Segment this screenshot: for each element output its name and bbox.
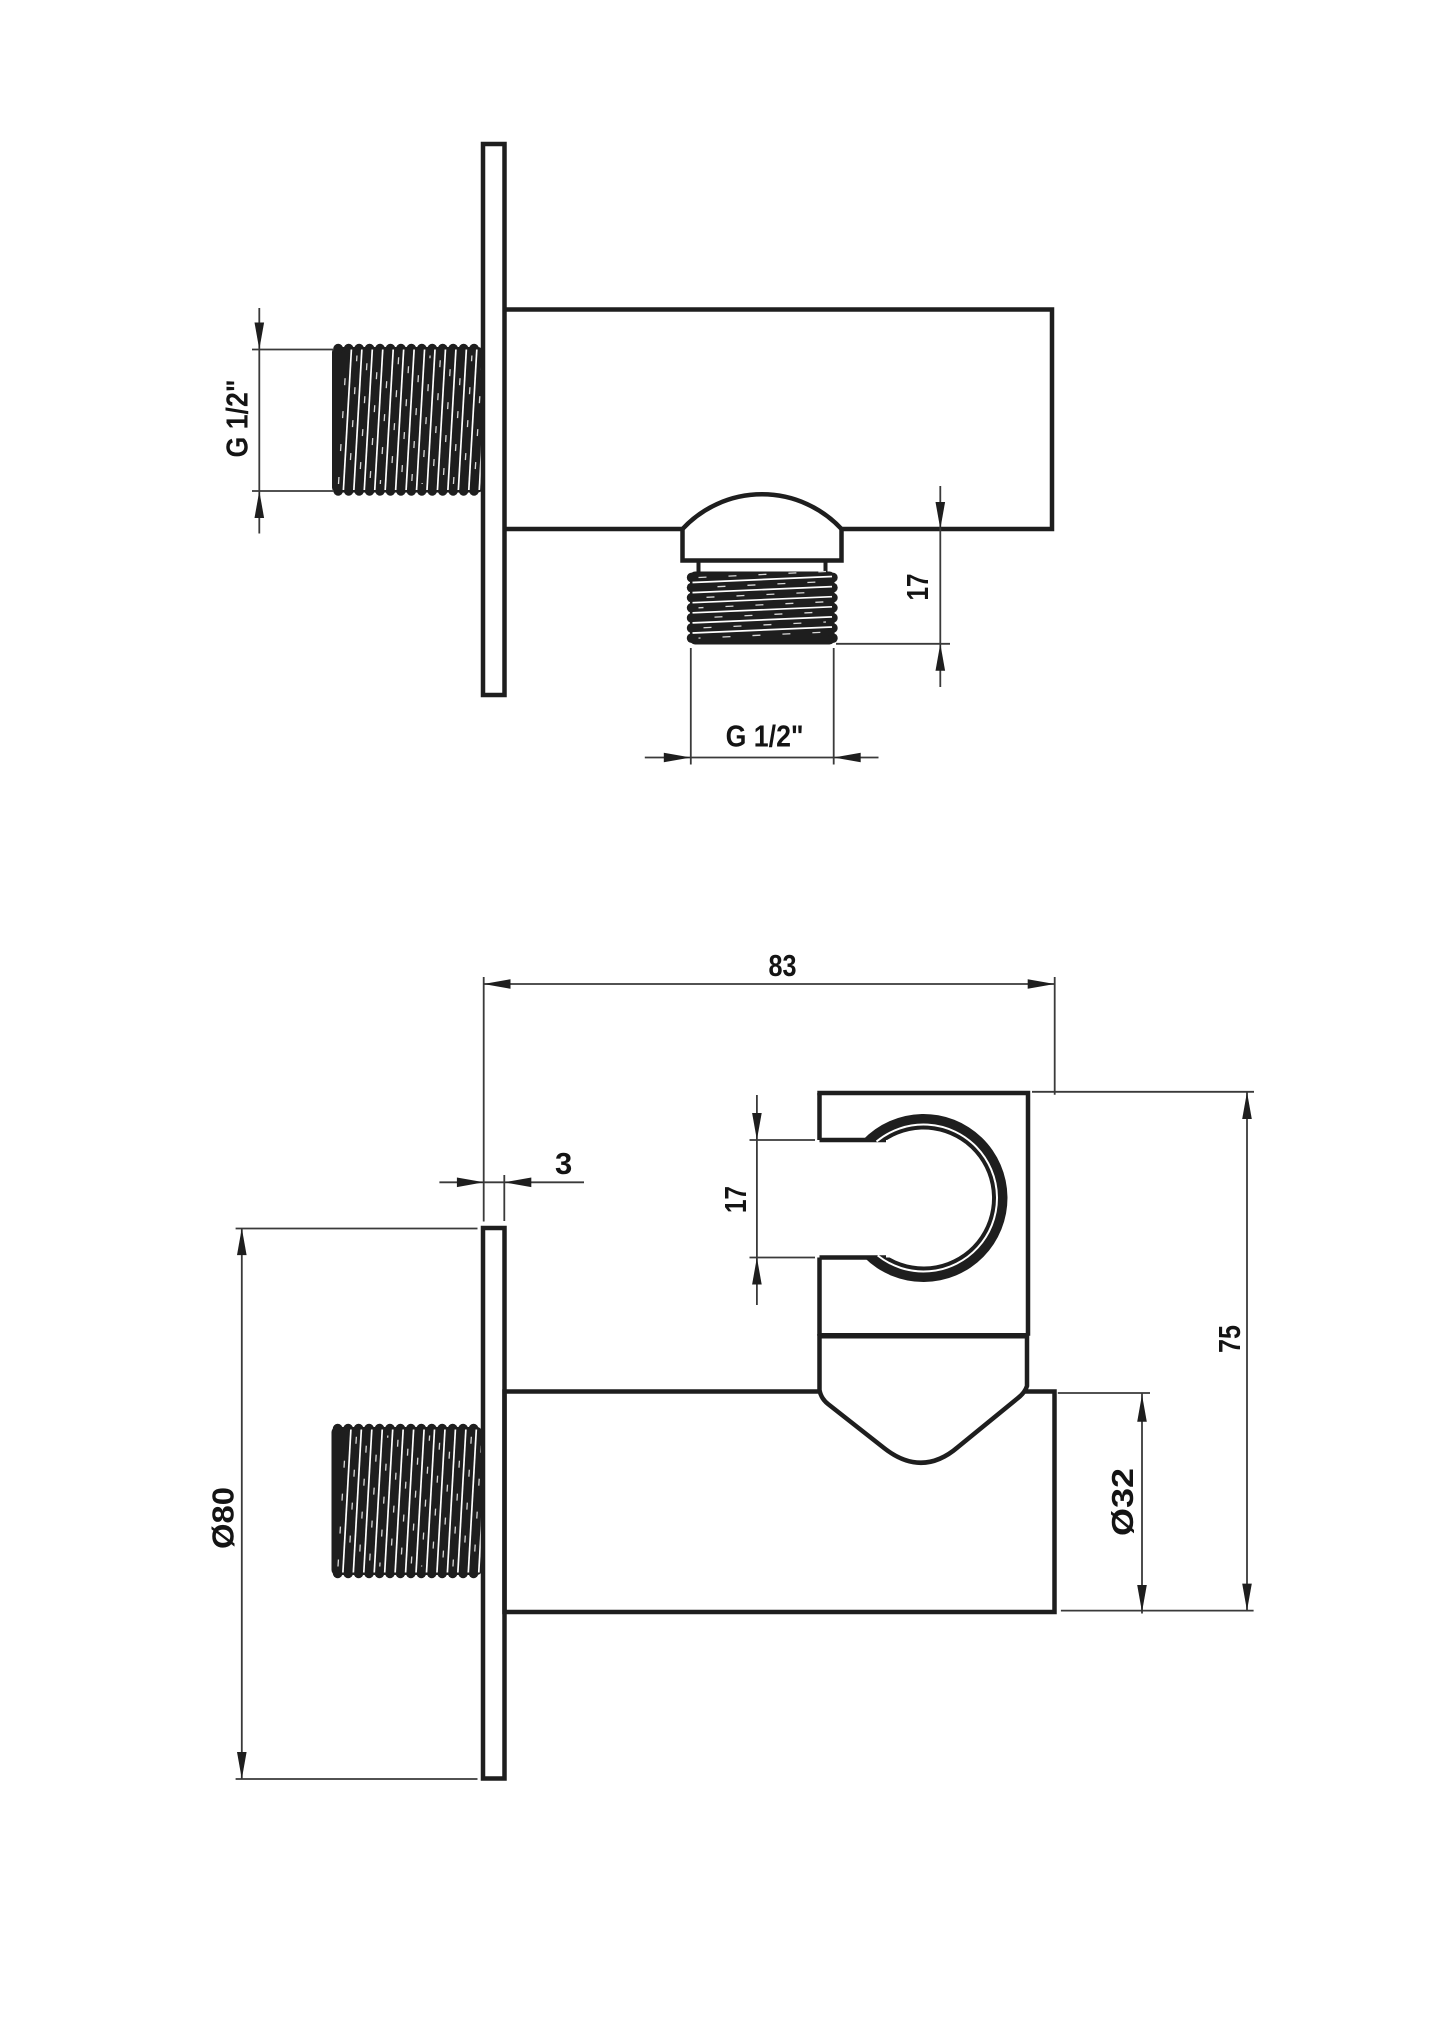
svg-text:G 1/2": G 1/2" — [726, 719, 804, 754]
svg-text:83: 83 — [769, 948, 797, 983]
svg-text:Ø32: Ø32 — [1105, 1468, 1140, 1536]
svg-text:Ø80: Ø80 — [205, 1487, 240, 1549]
svg-text:75: 75 — [1212, 1325, 1247, 1353]
svg-text:G 1/2": G 1/2" — [220, 380, 255, 458]
svg-text:3: 3 — [555, 1146, 572, 1181]
svg-text:17: 17 — [900, 574, 935, 601]
svg-text:17: 17 — [718, 1186, 753, 1213]
